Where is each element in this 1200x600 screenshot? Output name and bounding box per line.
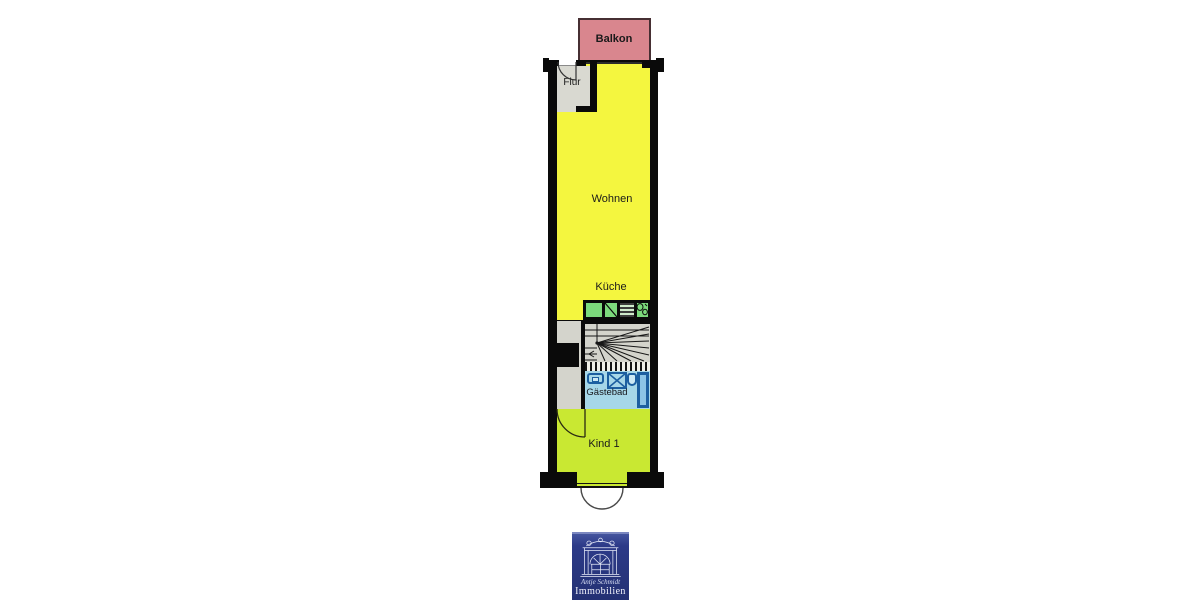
floor-plan-page: Balkon Flur Wohnen Küche Gästebad Kind 1 (0, 0, 1200, 600)
sink-icon (604, 302, 618, 318)
bottom-door-recess (577, 472, 627, 483)
shower-stall-icon (637, 372, 649, 408)
wall-bump-top-right (656, 58, 664, 72)
fridge-icon (585, 302, 603, 318)
shaft (557, 343, 579, 367)
staircase (585, 324, 650, 362)
flur-wall-vertical (590, 60, 597, 112)
wohnen-label: Wohnen (592, 193, 633, 205)
entrance-door-opening (559, 60, 576, 66)
bottom-wall-right (627, 472, 664, 488)
flur-label: Flur (563, 77, 580, 88)
kind1-label: Kind 1 (588, 438, 619, 450)
bottom-wall-left (540, 472, 577, 488)
agency-logo: Antje Schmidt Immobilien (572, 532, 629, 600)
toilet-icon (627, 373, 637, 386)
bottom-door-arc (581, 488, 623, 509)
bottom-door-threshold (577, 483, 627, 488)
stove-icon (619, 302, 635, 318)
logo-owner-name: Antje Schmidt (581, 579, 620, 586)
wall-bump-top-left (543, 58, 549, 72)
portal-icon (572, 534, 629, 578)
gaestebad-label: Gästebad (586, 388, 627, 398)
kueche-label: Küche (595, 281, 626, 293)
hatched-wall (585, 362, 650, 371)
flur-wall-stub (576, 106, 592, 112)
balkon-label: Balkon (596, 33, 633, 45)
hob-icon (636, 302, 649, 318)
logo-word: Immobilien (575, 586, 626, 597)
washbasin-bowl-icon (592, 377, 599, 382)
